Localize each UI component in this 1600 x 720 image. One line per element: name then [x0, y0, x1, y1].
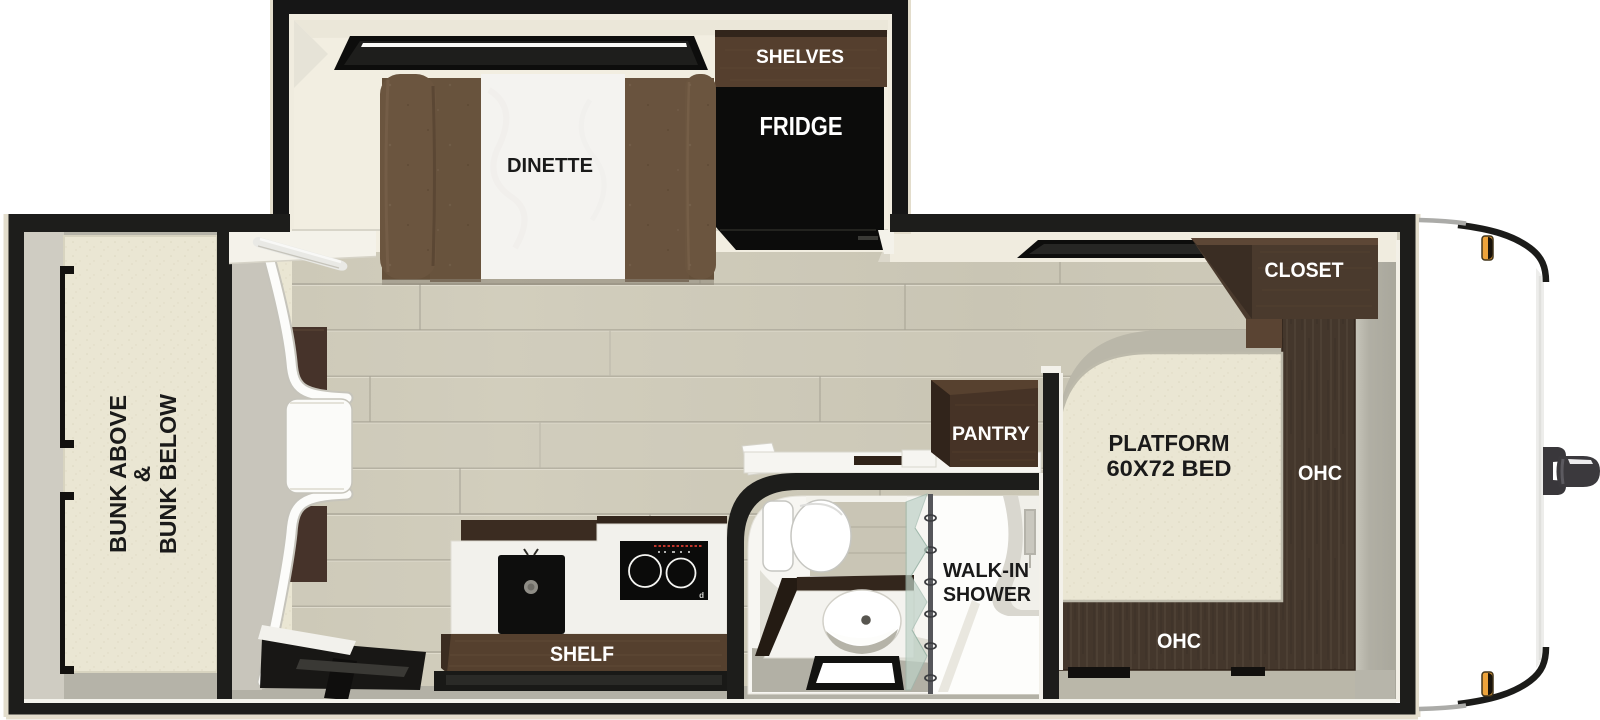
svg-text:&: & — [129, 466, 155, 483]
svg-text:BUNK BELOW: BUNK BELOW — [155, 394, 181, 554]
svg-text:SHOWER: SHOWER — [943, 584, 1032, 606]
svg-text:OHC: OHC — [1298, 462, 1342, 485]
svg-text:SHELF: SHELF — [550, 642, 614, 666]
svg-text:PLATFORM: PLATFORM — [1109, 430, 1230, 456]
svg-text:DINETTE: DINETTE — [507, 155, 593, 177]
svg-text:PANTRY: PANTRY — [952, 424, 1030, 445]
svg-text:OHC: OHC — [1157, 630, 1201, 653]
svg-text:60X72 BED: 60X72 BED — [1107, 456, 1232, 481]
svg-text:FRIDGE: FRIDGE — [760, 111, 843, 141]
svg-text:SHELVES: SHELVES — [756, 46, 844, 68]
svg-text:WALK-IN: WALK-IN — [943, 560, 1029, 582]
svg-text:CLOSET: CLOSET — [1265, 259, 1344, 282]
svg-text:d: d — [699, 591, 704, 600]
svg-text:BUNK ABOVE: BUNK ABOVE — [105, 395, 131, 553]
